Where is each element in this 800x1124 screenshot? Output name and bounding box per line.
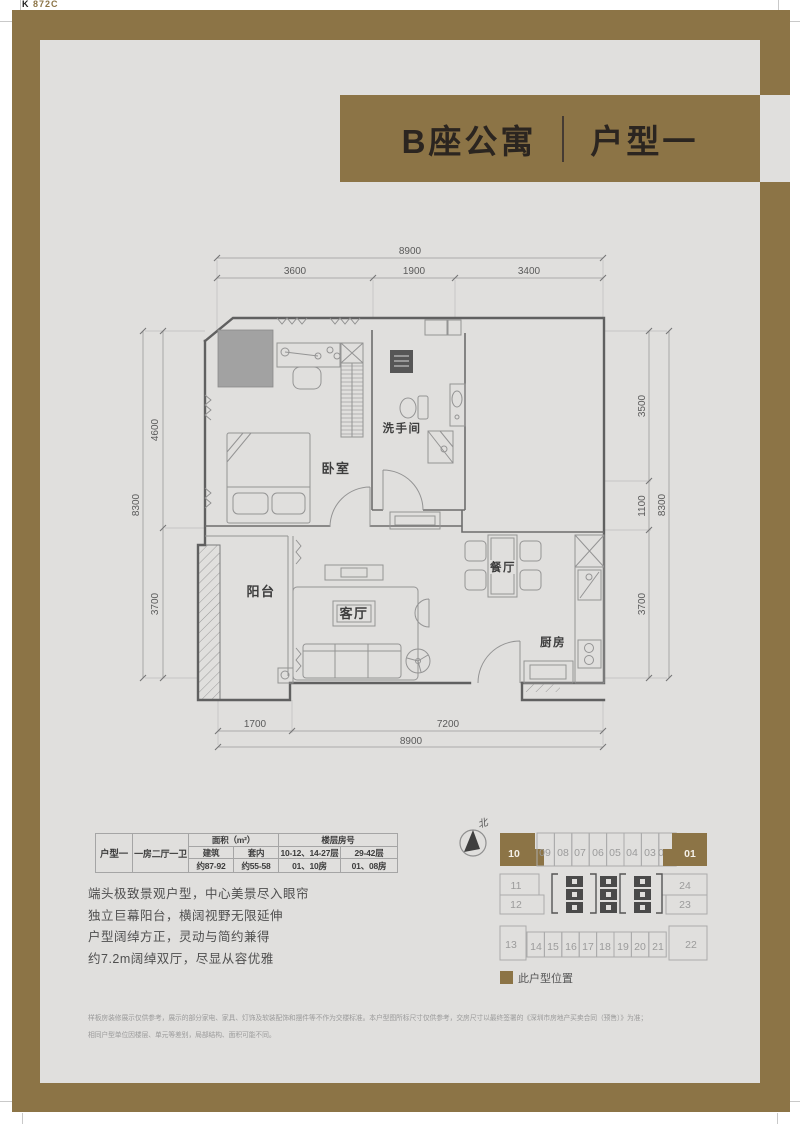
room-labels: 卧室 洗手间 阳台 客厅 餐厅 厨房 bbox=[246, 421, 566, 649]
disclaimer-line: 相同户型单位因楼层、单元等差别，局部结构、面积可能不同。 bbox=[88, 1028, 748, 1045]
svg-text:07: 07 bbox=[574, 847, 586, 859]
tv-console bbox=[325, 565, 383, 580]
crop-mark bbox=[0, 1101, 12, 1102]
north-indicator: 北 bbox=[460, 816, 490, 856]
north-label: 北 bbox=[476, 816, 490, 831]
spec-unit-layout: 一房二厅一卫 bbox=[133, 834, 189, 873]
page: { "plate": { "k": "K", "code": "872C" },… bbox=[0, 0, 800, 1124]
basin-counter bbox=[450, 384, 465, 426]
crop-mark bbox=[777, 1113, 778, 1124]
dim-left-total: 8300 bbox=[131, 493, 142, 516]
label-kitchen: 厨房 bbox=[540, 635, 566, 649]
dim-bottom-seg2: 7200 bbox=[437, 719, 460, 730]
dim-top-seg1: 3600 bbox=[284, 266, 307, 277]
svg-text:05: 05 bbox=[609, 847, 621, 859]
keyplan-top-row: 10 09 08 07 06 05 04 03 02 01 bbox=[500, 833, 707, 866]
banner-divider bbox=[562, 116, 564, 162]
legend-swatch bbox=[500, 971, 513, 984]
selling-point-line: 约7.2m阔绰双厅，尽显从容优雅 bbox=[88, 949, 309, 971]
spec-sub-header: 10-12、14-27层 bbox=[279, 847, 341, 859]
keyplan-mid-row: 11 12 24 23 bbox=[500, 874, 707, 914]
svg-text:04: 04 bbox=[626, 847, 638, 859]
dim-top-seg3: 3400 bbox=[518, 266, 541, 277]
spec-sub-header: 建筑 bbox=[189, 847, 234, 859]
kitchen-fixtures bbox=[524, 535, 604, 692]
svg-text:17: 17 bbox=[582, 941, 594, 953]
color-plate-label: K 872C bbox=[22, 0, 59, 9]
legend-label: 此户型位置 bbox=[518, 971, 573, 985]
dim-right-total: 8300 bbox=[657, 493, 668, 516]
svg-text:09: 09 bbox=[539, 847, 551, 859]
label-dining: 餐厅 bbox=[489, 560, 516, 574]
dim-top-total: 8900 bbox=[399, 246, 422, 257]
selling-point-line: 户型阔绰方正，灵动与简约兼得 bbox=[88, 927, 309, 949]
plate-code: 872C bbox=[33, 0, 59, 9]
title-banner: B座公寓 户型一 bbox=[340, 95, 760, 182]
disclaimer-line: 样板房装修展示仅供参考，展示的部分家电、家具、灯饰及软装配饰和摆件等不作为交楼标… bbox=[88, 1011, 748, 1028]
sofa bbox=[303, 644, 401, 678]
bathroom-fixtures bbox=[390, 320, 465, 463]
svg-text:22: 22 bbox=[685, 939, 697, 951]
unit-spec-table: 户型一 一房二厅一卫 面积（m²） 楼层房号 建筑 套内 10-12、14-27… bbox=[95, 833, 398, 873]
disclaimer: 样板房装修展示仅供参考，展示的部分家电、家具、灯饰及软装配饰和摆件等不作为交楼标… bbox=[88, 1011, 748, 1044]
svg-text:11: 11 bbox=[511, 880, 522, 892]
crop-mark bbox=[22, 1113, 23, 1124]
svg-text:18: 18 bbox=[599, 941, 611, 953]
spec-value: 约55-58 bbox=[234, 859, 279, 873]
svg-text:14: 14 bbox=[530, 941, 542, 953]
toilet bbox=[400, 398, 416, 418]
dim-bottom-total: 8900 bbox=[400, 736, 423, 747]
selling-point-line: 端头极致景观户型，中心美景尽入眼帘 bbox=[88, 884, 309, 906]
spec-value: 01、10房 bbox=[279, 859, 341, 873]
spec-floor-header: 楼层房号 bbox=[279, 834, 398, 847]
crop-mark bbox=[20, 0, 21, 10]
crop-mark bbox=[790, 21, 800, 22]
svg-text:16: 16 bbox=[565, 941, 577, 953]
label-living: 客厅 bbox=[339, 606, 368, 621]
keyplan-legend: 此户型位置 bbox=[500, 971, 573, 985]
floorplan-drawing: 8900 3600 1900 3400 8300 4600 3700 3500 … bbox=[130, 240, 690, 760]
svg-text:23: 23 bbox=[679, 899, 691, 911]
stove bbox=[578, 640, 601, 668]
svg-text:12: 12 bbox=[510, 899, 522, 911]
label-balcony: 阳台 bbox=[246, 584, 275, 599]
spec-unit-name: 户型一 bbox=[96, 834, 133, 873]
crop-mark bbox=[790, 1101, 800, 1102]
svg-text:13: 13 bbox=[505, 939, 517, 951]
svg-text:24: 24 bbox=[679, 880, 691, 892]
floor-key-plan: 北 10 09 08 07 06 05 04 03 02 01 11 12 24… bbox=[448, 808, 740, 1000]
spec-sub-header: 套内 bbox=[234, 847, 279, 859]
banner-frame-patch bbox=[760, 95, 790, 182]
label-bedroom: 卧室 bbox=[321, 461, 350, 476]
spec-value: 01、08房 bbox=[341, 859, 398, 873]
svg-text:01: 01 bbox=[684, 848, 696, 860]
dim-left-seg1: 4600 bbox=[150, 418, 161, 441]
keyplan-bottom-row: 13 14 15 16 17 18 19 20 21 22 bbox=[500, 926, 707, 960]
crop-mark bbox=[0, 21, 12, 22]
svg-text:06: 06 bbox=[592, 847, 604, 859]
dim-bottom-seg1: 1700 bbox=[244, 719, 267, 730]
dim-top-seg2: 1900 bbox=[403, 266, 426, 277]
spec-area-header: 面积（m²） bbox=[189, 834, 279, 847]
dim-right-seg2: 1100 bbox=[637, 495, 648, 517]
armchair bbox=[415, 599, 429, 627]
plate-k: K bbox=[22, 0, 30, 9]
threshold-hatch bbox=[526, 684, 560, 692]
svg-text:10: 10 bbox=[508, 848, 520, 860]
svg-text:19: 19 bbox=[617, 941, 629, 953]
dim-right-seg3: 3700 bbox=[637, 592, 648, 615]
dim-right-seg1: 3500 bbox=[637, 394, 648, 417]
dim-left-seg2: 3700 bbox=[150, 592, 161, 615]
svg-text:08: 08 bbox=[557, 847, 569, 859]
crop-mark bbox=[778, 0, 779, 10]
banner-building: B座公寓 bbox=[402, 115, 537, 163]
selling-points: 端头极致景观户型，中心美景尽入眼帘 独立巨幕阳台，横阔视野无限延伸 户型阔绰方正… bbox=[88, 884, 309, 970]
svg-text:15: 15 bbox=[547, 941, 559, 953]
banner-unit: 户型一 bbox=[590, 115, 698, 163]
structural-shaft-block bbox=[218, 330, 273, 387]
label-bathroom: 洗手间 bbox=[383, 421, 422, 435]
spec-sub-header: 29-42层 bbox=[341, 847, 398, 859]
balcony-hatched-wall bbox=[198, 545, 220, 700]
selling-point-line: 独立巨幕阳台，横阔视野无限延伸 bbox=[88, 906, 309, 928]
svg-text:03: 03 bbox=[644, 847, 656, 859]
kitchen-counter bbox=[575, 535, 604, 683]
svg-text:21: 21 bbox=[652, 941, 664, 953]
svg-text:20: 20 bbox=[634, 941, 646, 953]
elevator-core bbox=[552, 874, 662, 913]
spec-value: 约87-92 bbox=[189, 859, 234, 873]
